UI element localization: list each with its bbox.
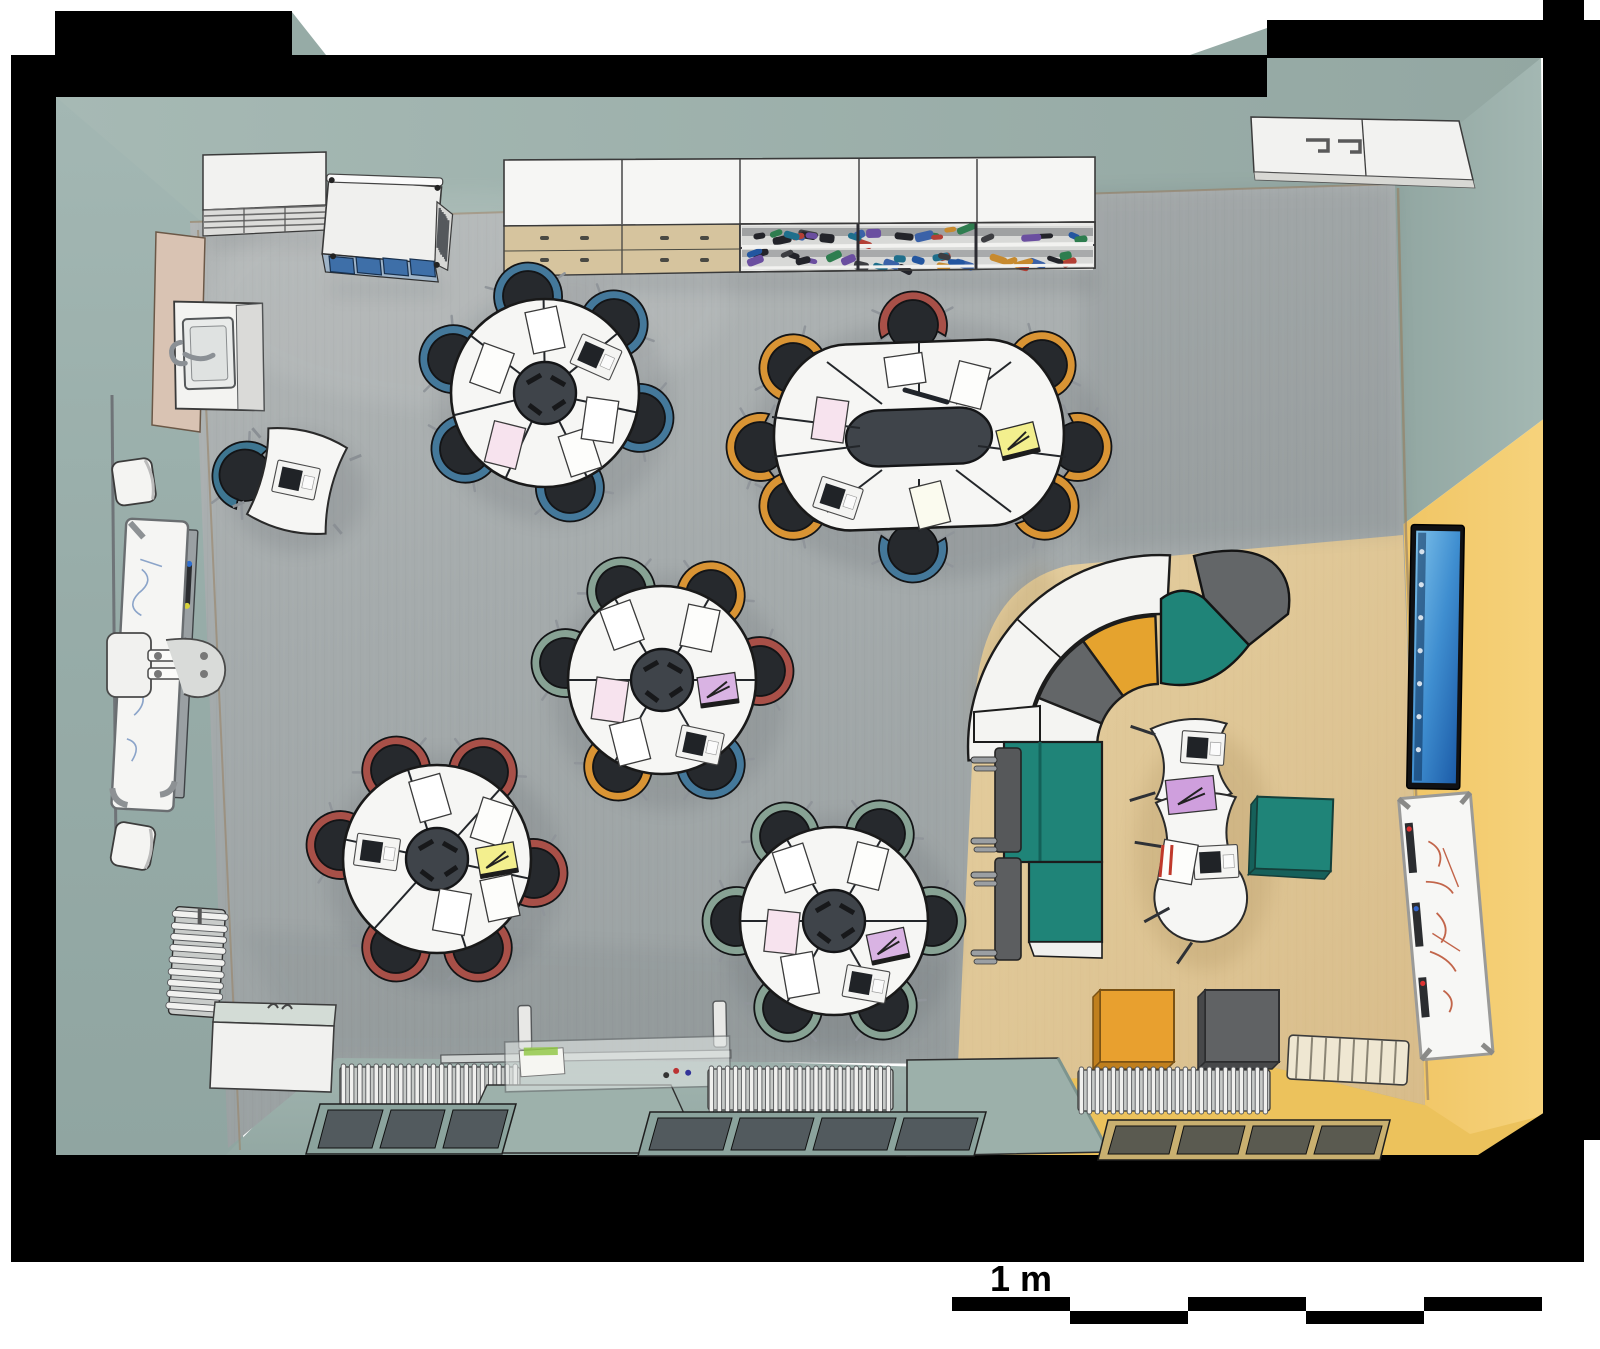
svg-text:1 m: 1 m xyxy=(990,1258,1052,1299)
